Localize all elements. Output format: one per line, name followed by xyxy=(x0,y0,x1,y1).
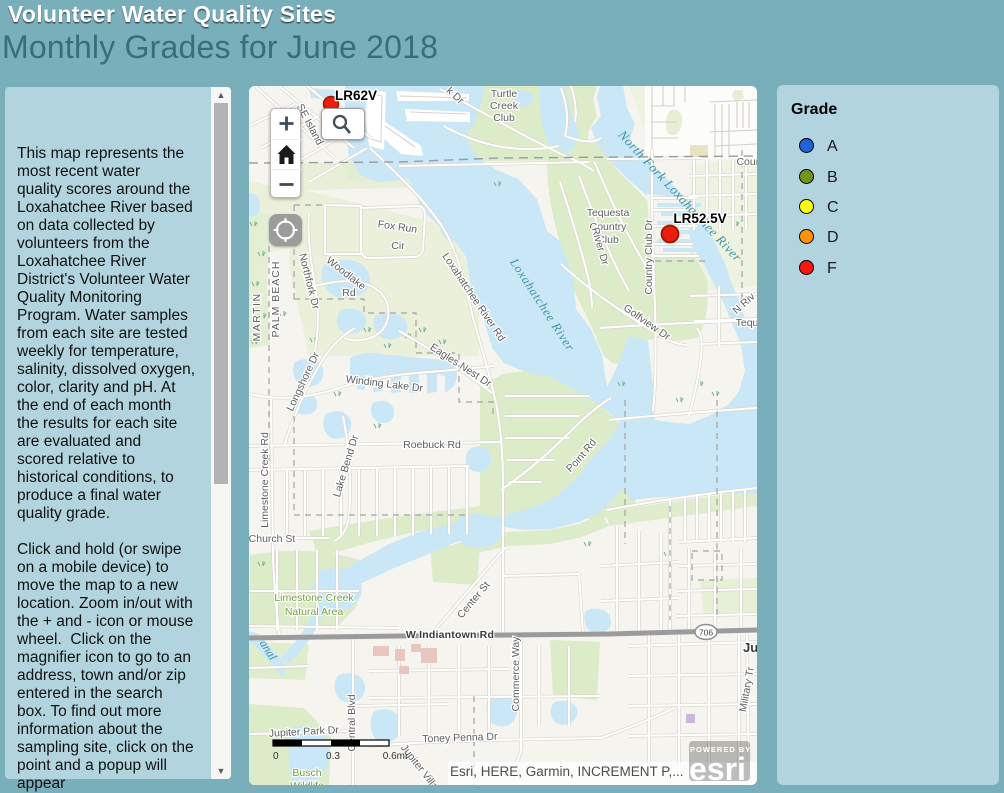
svg-text:Natural Area: Natural Area xyxy=(285,606,344,618)
svg-text:LR52.5V: LR52.5V xyxy=(673,211,726,226)
svg-text:Commerce Way: Commerce Way xyxy=(510,636,522,712)
svg-text:Roebuck Rd: Roebuck Rd xyxy=(403,439,461,451)
svg-text:Tequ: Tequ xyxy=(736,317,757,329)
svg-text:PALM BEACH: PALM BEACH xyxy=(270,261,282,338)
svg-text:Cir: Cir xyxy=(391,240,405,252)
svg-text:0: 0 xyxy=(273,751,279,762)
svg-text:Limestone Creek Rd: Limestone Creek Rd xyxy=(259,432,271,528)
svg-text:Coun: Coun xyxy=(736,156,757,168)
svg-text:0.3: 0.3 xyxy=(326,751,340,762)
svg-text:Creek: Creek xyxy=(490,100,519,112)
svg-text:MARTIN: MARTIN xyxy=(251,292,263,341)
svg-text:W Indiantown Rd: W Indiantown Rd xyxy=(406,629,494,641)
svg-text:Jupiter: Jupiter xyxy=(743,640,757,655)
svg-text:Esri, HERE, Garmin, INCREMENT: Esri, HERE, Garmin, INCREMENT P,... xyxy=(450,764,684,779)
svg-text:Turtle: Turtle xyxy=(491,88,518,100)
svg-text:Tequesta: Tequesta xyxy=(587,207,630,219)
svg-text:LR62V: LR62V xyxy=(335,88,377,103)
svg-text:Church St: Church St xyxy=(249,533,295,545)
svg-text:Club: Club xyxy=(493,112,515,124)
svg-text:esri: esri xyxy=(689,751,746,785)
svg-text:0.6mi: 0.6mi xyxy=(383,751,407,762)
svg-text:Rd: Rd xyxy=(342,287,356,299)
svg-text:Country Club Dr: Country Club Dr xyxy=(643,219,655,295)
svg-text:706: 706 xyxy=(699,628,713,638)
svg-text:Limestone Creek: Limestone Creek xyxy=(274,592,354,604)
svg-text:Wildlife: Wildlife xyxy=(290,780,324,785)
svg-text:Busch: Busch xyxy=(292,767,321,779)
